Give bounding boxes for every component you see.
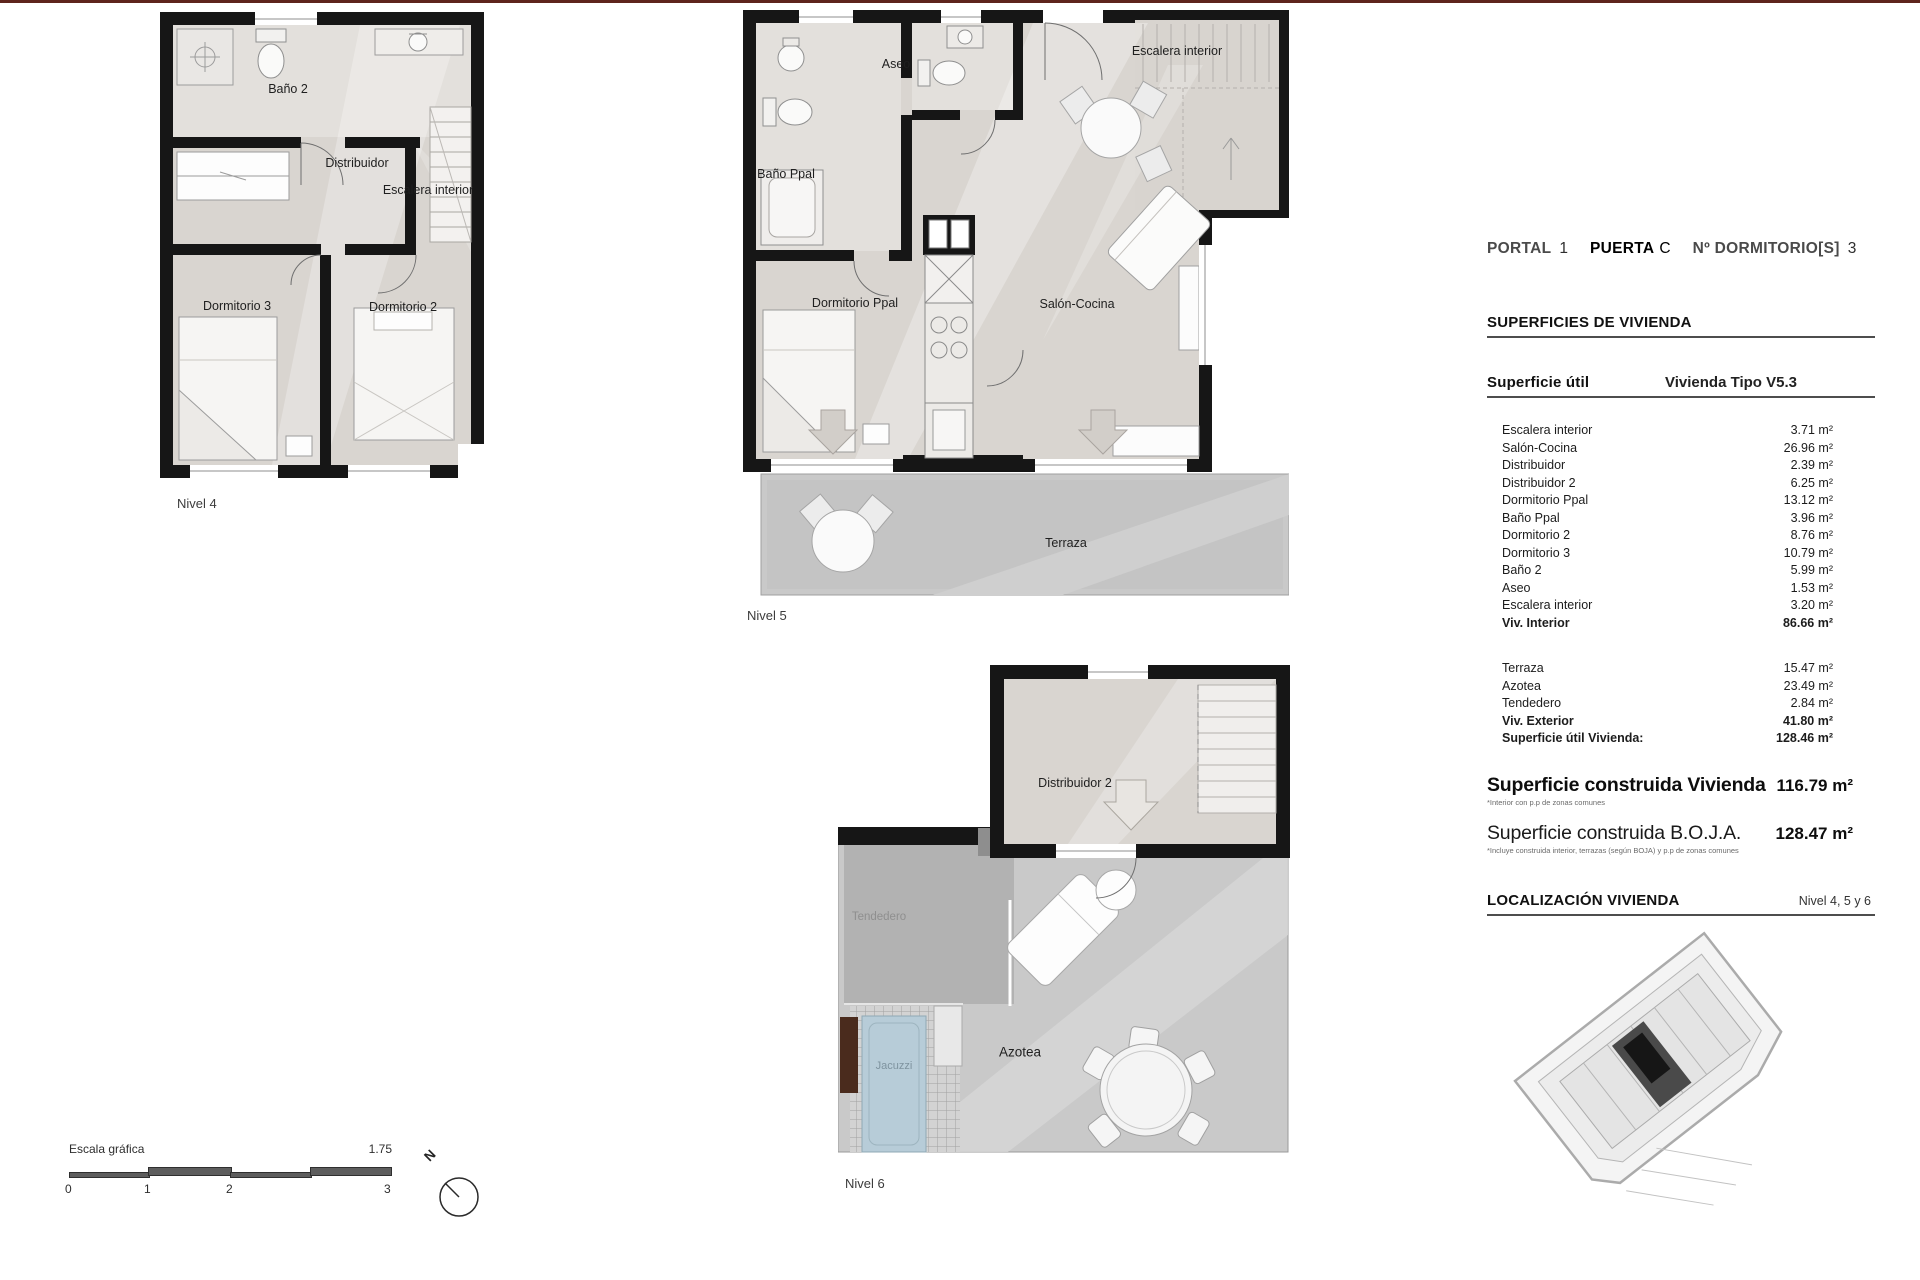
- surface-row: Azotea23.49 m²: [1487, 678, 1875, 696]
- room-label-aseo: Aseo: [882, 57, 911, 71]
- surface-row: Terraza15.47 m²: [1487, 660, 1875, 678]
- row-value: 3.96 m²: [1791, 510, 1875, 528]
- row-label: Baño Ppal: [1487, 510, 1560, 528]
- room-label-escalera-n4: Escalera interior: [383, 183, 473, 197]
- row-label: Escalera interior: [1487, 597, 1592, 615]
- tv-sideboard-icon: [1179, 266, 1199, 350]
- surfaces-title-row: SUPERFICIES DE VIVIENDA: [1487, 314, 1875, 338]
- row-label: Dormitorio 2: [1487, 527, 1570, 545]
- construida-block: Superficie construida Vivienda 116.79 m²…: [1487, 774, 1875, 807]
- nivel4-floorplan-svg: [160, 12, 484, 478]
- row-value: 2.39 m²: [1791, 457, 1875, 475]
- row-value: 10.79 m²: [1784, 545, 1875, 563]
- surface-row: Baño 25.99 m²: [1487, 562, 1875, 580]
- nivel4-caption: Nivel 4: [177, 496, 217, 511]
- row-value: 3.71 m²: [1791, 422, 1875, 440]
- row-label: Viv. Exterior: [1487, 713, 1574, 731]
- scale-tick: 2: [226, 1182, 233, 1196]
- row-label: Escalera interior: [1487, 422, 1592, 440]
- row-label: Superficie útil Vivienda:: [1487, 730, 1643, 748]
- row-value: 41.80 m²: [1783, 713, 1875, 731]
- boja-label: Superficie construida B.O.J.A.: [1487, 822, 1741, 845]
- stairs-icon: [1198, 685, 1276, 813]
- row-label: Viv. Interior: [1487, 615, 1570, 633]
- nivel6-floorplan-svg: [838, 660, 1290, 1155]
- puerta-value: C: [1659, 240, 1670, 258]
- top-border-line: [0, 0, 1920, 3]
- row-value: 2.84 m²: [1791, 695, 1875, 713]
- shower-icon: [177, 29, 233, 85]
- unit-header: PORTAL 1 PUERTA C Nº DORMITORIO[S] 3: [1487, 240, 1875, 258]
- room-label-bano-ppal: Baño Ppal: [757, 167, 815, 181]
- row-label: Dormitorio 3: [1487, 545, 1570, 563]
- portal-value: 1: [1559, 240, 1568, 258]
- row-value: 3.20 m²: [1791, 597, 1875, 615]
- row-value: 23.49 m²: [1784, 678, 1875, 696]
- construida-label: Superficie construida Vivienda: [1487, 774, 1766, 797]
- row-value: 128.46 m²: [1776, 730, 1875, 748]
- construida-value: 116.79 m²: [1776, 776, 1875, 796]
- jacuzzi-shape: [862, 1016, 926, 1152]
- kitchen-icon: [925, 220, 973, 458]
- row-value: 13.12 m²: [1784, 492, 1875, 510]
- room-label-jacuzzi: Jacuzzi: [876, 1060, 913, 1072]
- bench-icon: [840, 1017, 858, 1093]
- util-header-row: Superficie útil Vivienda Tipo V5.3: [1487, 374, 1875, 398]
- wardrobe-icon: [177, 152, 289, 200]
- surface-row: Escalera interior3.20 m²: [1487, 597, 1875, 615]
- surface-row: Dormitorio 310.79 m²: [1487, 545, 1875, 563]
- bed-icon: [354, 308, 454, 440]
- scale-tick: 0: [65, 1182, 72, 1196]
- row-label: Baño 2: [1487, 562, 1542, 580]
- interior-total-row: Viv. Interior86.66 m²: [1487, 615, 1875, 633]
- boja-value: 128.47 m²: [1776, 824, 1876, 844]
- scale-segment: [148, 1167, 232, 1176]
- plan-sheet: Baño 2 Distribuidor Escalera interior Do…: [0, 0, 1920, 1280]
- row-value: 1.53 m²: [1791, 580, 1875, 598]
- room-label-dorm2: Dormitorio 2: [369, 300, 437, 314]
- util-header-label: Superficie útil: [1487, 374, 1589, 391]
- surface-row: Escalera interior3.71 m²: [1487, 422, 1875, 440]
- nivel5-caption: Nivel 5: [747, 608, 787, 623]
- room-label-bano2: Baño 2: [268, 82, 308, 96]
- row-value: 6.25 m²: [1791, 475, 1875, 493]
- row-value: 86.66 m²: [1783, 615, 1875, 633]
- toilet-icon: [256, 29, 286, 78]
- construida-footnote: *Interior con p.p de zonas comunes: [1487, 798, 1875, 807]
- location-map-svg: [1505, 928, 1825, 1248]
- row-value: 5.99 m²: [1791, 562, 1875, 580]
- terrace: [761, 474, 1289, 595]
- localizacion-title-row: LOCALIZACIÓN VIVIENDA Nivel 4, 5 y 6: [1487, 892, 1875, 916]
- room-label-distribuidor2: Distribuidor 2: [1038, 776, 1112, 790]
- sink-icon: [375, 29, 463, 55]
- room-label-terraza: Terraza: [1045, 536, 1087, 550]
- surface-row: Tendedero2.84 m²: [1487, 695, 1875, 713]
- scale-segment: [310, 1167, 392, 1176]
- row-value: 8.76 m²: [1791, 527, 1875, 545]
- stairs-icon: [430, 107, 471, 242]
- scale-tick: 1: [144, 1182, 151, 1196]
- surface-row: Distribuidor2.39 m²: [1487, 457, 1875, 475]
- localizacion-title: LOCALIZACIÓN VIVIENDA: [1487, 892, 1680, 909]
- room-label-dorm3: Dormitorio 3: [203, 299, 271, 313]
- surface-row: Dormitorio 28.76 m²: [1487, 527, 1875, 545]
- row-value: 26.96 m²: [1784, 440, 1875, 458]
- row-label: Terraza: [1487, 660, 1544, 678]
- room-label-azotea: Azotea: [999, 1045, 1041, 1060]
- room-label-tendedero: Tendedero: [852, 911, 906, 923]
- row-label: Azotea: [1487, 678, 1541, 696]
- scale-segment: [69, 1172, 150, 1178]
- room-label-salon-cocina: Salón-Cocina: [1039, 297, 1114, 311]
- util-header-value: Vivienda Tipo V5.3: [1665, 374, 1875, 391]
- scale-segment: [230, 1172, 312, 1178]
- umbrella-icon: [1096, 870, 1136, 910]
- dormitorios-label: Nº DORMITORIO[S]: [1693, 240, 1840, 258]
- localizacion-nivel: Nivel 4, 5 y 6: [1799, 894, 1875, 908]
- row-label: Aseo: [1487, 580, 1531, 598]
- scale-tick: 3: [384, 1182, 391, 1196]
- dormitorios-value: 3: [1848, 240, 1857, 258]
- surface-row: Baño Ppal3.96 m²: [1487, 510, 1875, 528]
- surface-row: Salón-Cocina26.96 m²: [1487, 440, 1875, 458]
- boja-footnote: *Incluye construida interior, terrazas (…: [1487, 846, 1875, 855]
- row-value: 15.47 m²: [1784, 660, 1875, 678]
- util-rows-table: Escalera interior3.71 m² Salón-Cocina26.…: [1487, 422, 1875, 632]
- exterior-total-row: Viv. Exterior41.80 m²: [1487, 713, 1875, 731]
- room-label-distribuidor: Distribuidor: [325, 156, 388, 170]
- surface-row: Aseo1.53 m²: [1487, 580, 1875, 598]
- puerta-label: PUERTA: [1590, 240, 1654, 258]
- room-label-escalera-n5: Escalera interior: [1132, 44, 1222, 58]
- row-label: Tendedero: [1487, 695, 1561, 713]
- exterior-rows-table: Terraza15.47 m² Azotea23.49 m² Tendedero…: [1487, 660, 1875, 748]
- surface-row: Dormitorio Ppal13.12 m²: [1487, 492, 1875, 510]
- azotea-terrace: [838, 838, 1288, 1152]
- boja-block: Superficie construida B.O.J.A. 128.47 m²…: [1487, 822, 1875, 855]
- row-label: Dormitorio Ppal: [1487, 492, 1588, 510]
- row-label: Distribuidor: [1487, 457, 1565, 475]
- row-label: Distribuidor 2: [1487, 475, 1576, 493]
- nivel6-caption: Nivel 6: [845, 1176, 885, 1191]
- portal-label: PORTAL: [1487, 240, 1551, 258]
- surface-row: Distribuidor 26.25 m²: [1487, 475, 1875, 493]
- scale-bar-group: Escala gráfica 1.75 0 1 2 3 N: [0, 1130, 520, 1220]
- row-label: Salón-Cocina: [1487, 440, 1577, 458]
- surfaces-title: SUPERFICIES DE VIVIENDA: [1487, 314, 1692, 331]
- util-total-row: Superficie útil Vivienda:128.46 m²: [1487, 730, 1875, 748]
- scale-ratio: 1.75: [352, 1142, 392, 1156]
- scale-label: Escala gráfica: [69, 1142, 144, 1156]
- room-label-dorm-ppal: Dormitorio Ppal: [812, 296, 898, 310]
